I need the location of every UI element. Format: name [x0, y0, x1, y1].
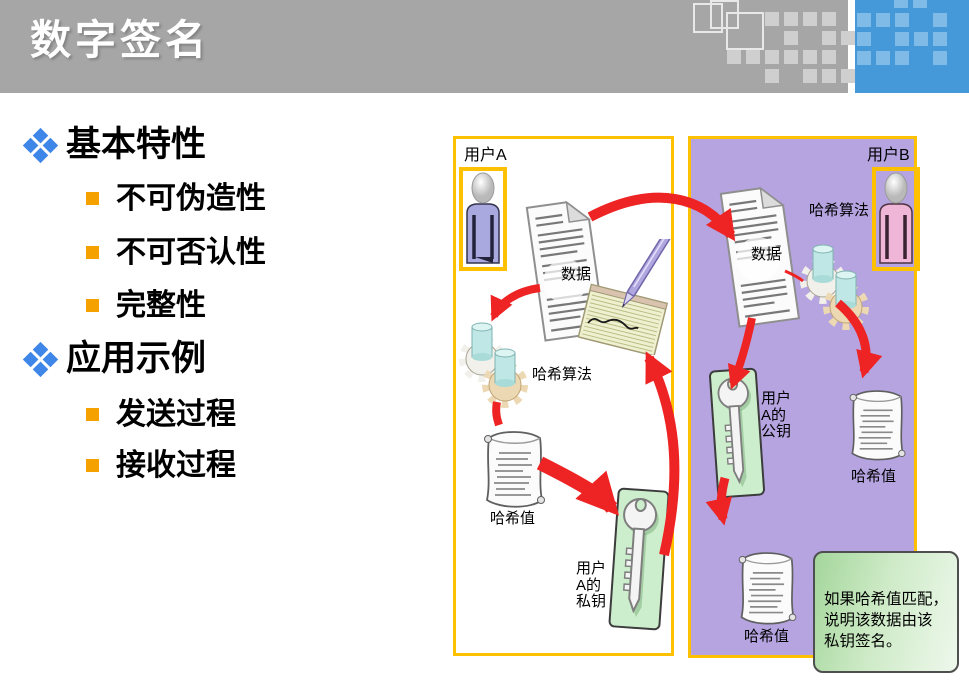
decor-square — [765, 12, 779, 26]
bullet-item-integrity: 完整性 — [86, 289, 206, 322]
note-line: 说明该数据由该 — [824, 610, 951, 631]
bullet-label: 基本特性 — [66, 126, 206, 165]
decor-square — [876, 13, 890, 27]
user-b-label: 用户B — [867, 141, 910, 165]
decor-square — [765, 69, 779, 83]
bullet-item-examples: 应用示例 — [28, 340, 206, 379]
page-title: 数字签名 — [30, 6, 210, 66]
bullet-item-send: 发送过程 — [86, 398, 236, 431]
hash-value-label-b1: 哈希值 — [851, 469, 896, 486]
key-icon — [711, 370, 761, 493]
bullet-label: 应用示例 — [66, 340, 206, 379]
bullet-item-unforgeable: 不可伪造性 — [86, 182, 266, 215]
public-key-card — [709, 367, 766, 498]
decor-square — [857, 13, 871, 27]
bullet-label: 发送过程 — [116, 398, 236, 431]
signing-pad-icon — [578, 239, 674, 355]
bullet-label: 不可伪造性 — [116, 182, 266, 215]
hash-value-scroll-b2-icon — [734, 546, 802, 630]
hash-algo-label-a: 哈希算法 — [532, 367, 592, 384]
decor-square — [857, 32, 871, 46]
decor-square — [784, 31, 798, 45]
square-bullet-icon — [86, 459, 99, 472]
private-key-label: 用户 A的 私钥 — [576, 561, 606, 611]
public-key-label: 用户 A的 公钥 — [761, 391, 791, 441]
square-bullet-icon — [86, 246, 99, 259]
decor-square — [803, 50, 817, 64]
hash-value-scroll-b1-icon — [845, 384, 911, 466]
data-label-b: 数据 — [751, 247, 781, 264]
diamond-bullet-icon — [23, 342, 58, 377]
decor-square — [803, 12, 817, 26]
bullet-label: 完整性 — [116, 289, 206, 322]
header-blue-block — [855, 0, 969, 93]
bullet-item-nonrepudiation: 不可否认性 — [86, 236, 266, 269]
key-icon — [611, 489, 664, 622]
decor-square — [784, 12, 798, 26]
square-bullet-icon — [86, 299, 99, 312]
decor-square — [746, 50, 760, 64]
decor-square — [933, 13, 947, 27]
decor-square — [784, 50, 798, 64]
user-a-label: 用户A — [464, 141, 507, 165]
square-bullet-icon — [86, 192, 99, 205]
decor-square — [857, 51, 871, 65]
decor-square — [895, 51, 909, 65]
bullet-label: 接收过程 — [116, 449, 236, 482]
decor-square — [765, 50, 779, 64]
square-bullet-icon — [86, 408, 99, 421]
person-a-icon — [463, 171, 503, 267]
note-box: 如果哈希值匹配， 说明该数据由该 私钥签名。 — [813, 551, 959, 673]
bullet-item-basic: 基本特性 — [28, 126, 206, 165]
decor-square — [895, 32, 909, 46]
decor-square — [876, 51, 890, 65]
hash-value-label-b2: 哈希值 — [744, 629, 789, 646]
hash-gears-b-icon — [799, 241, 875, 337]
decor-outline-square — [726, 12, 764, 50]
decor-square — [895, 13, 909, 27]
note-line: 私钥签名。 — [824, 631, 951, 652]
hash-value-scroll-a-icon — [479, 425, 551, 513]
person-a-frame — [459, 167, 507, 271]
decor-square — [933, 51, 947, 65]
diamond-bullet-icon — [23, 128, 58, 163]
decor-square — [914, 32, 928, 46]
decor-square — [841, 69, 855, 83]
data-label-a: 数据 — [561, 267, 591, 284]
note-line: 如果哈希值匹配， — [824, 589, 951, 610]
person-b-icon — [876, 171, 916, 267]
hash-value-label-a: 哈希值 — [490, 511, 535, 528]
decor-square — [822, 69, 836, 83]
decor-square — [913, 0, 927, 8]
decor-square — [822, 50, 836, 64]
private-key-card — [608, 487, 670, 630]
decor-square — [803, 69, 817, 83]
decor-square — [894, 0, 908, 8]
decor-square — [933, 32, 947, 46]
hash-gears-a-icon — [458, 319, 534, 415]
panel-user-a: 用户A — [453, 136, 674, 656]
bullet-item-receive: 接收过程 — [86, 449, 236, 482]
bullet-label: 不可否认性 — [116, 236, 266, 269]
decor-square — [822, 31, 836, 45]
hash-algo-label-b: 哈希算法 — [809, 203, 869, 220]
person-b-frame — [872, 167, 920, 271]
slide: 数字签名 基本特性 不可伪造性 不可否认性 完整性 应用示例 发送过程 接收过程… — [0, 0, 969, 699]
decor-square — [822, 12, 836, 26]
decor-square — [727, 50, 741, 64]
decor-square — [841, 31, 855, 45]
